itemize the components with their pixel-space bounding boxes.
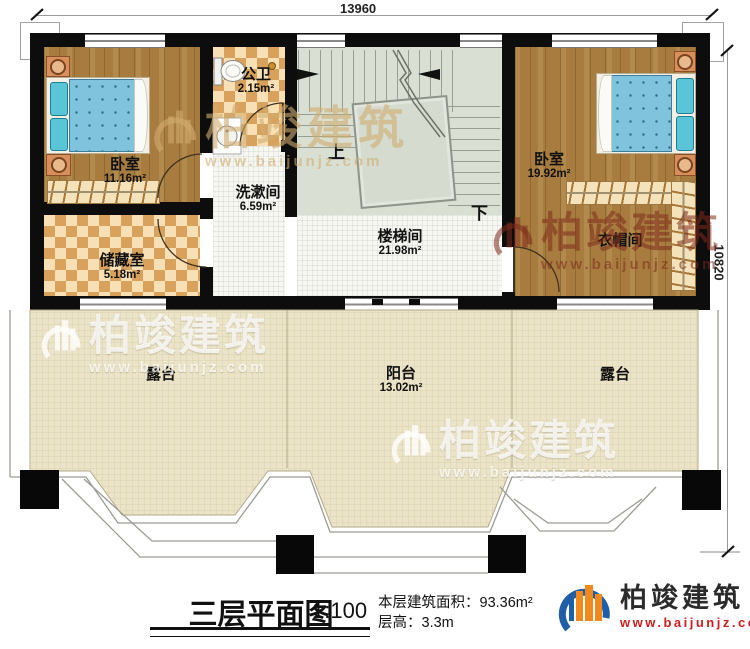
balcony-door-handles: [372, 299, 420, 305]
terrace-right-label: 露台: [600, 366, 630, 383]
bedroom-right-label: 卧室 19.92m²: [528, 151, 571, 181]
stairs-down-label: 下: [471, 199, 488, 224]
right-dimension-value: 10820: [712, 244, 727, 280]
plan-scale: 1:100: [312, 598, 367, 624]
top-dimension-value: 13960: [340, 1, 376, 16]
washbasin: [213, 118, 241, 154]
stairs-up-label: 上: [328, 138, 345, 163]
cloakroom-label: 衣帽间: [597, 232, 642, 249]
title-underline: [150, 627, 370, 637]
terrace-floor: [30, 310, 698, 527]
terrace-left-label: 露台: [146, 366, 176, 383]
brand-logo-icon: [556, 577, 612, 637]
plan-info: 本层建筑面积：93.36m² 层高：3.3m: [378, 594, 533, 633]
balcony-label: 阳台 13.02m²: [380, 365, 423, 395]
storage-label: 储藏室 5.18m²: [99, 252, 144, 282]
stairwell-label: 楼梯间 21.98m²: [377, 228, 422, 258]
floor-area-text: 本层建筑面积：93.36m²: [378, 594, 533, 614]
bathroom-label: 公卫 2.15m²: [238, 66, 274, 96]
brand-logo-text: 柏竣建筑 www.baijunjz.com: [620, 585, 750, 630]
plan-linework-overlay: [0, 0, 750, 649]
washroom-label: 洗漱间 6.59m²: [235, 184, 280, 214]
stair-break-line: [297, 50, 445, 137]
brand-logo: 柏竣建筑 www.baijunjz.com: [556, 577, 750, 637]
bedroom-left-label: 卧室 11.16m²: [104, 156, 146, 186]
floorplan-page: 13960 10820 上 下: [0, 0, 750, 649]
floor-height-text: 层高：3.3m: [378, 614, 533, 634]
